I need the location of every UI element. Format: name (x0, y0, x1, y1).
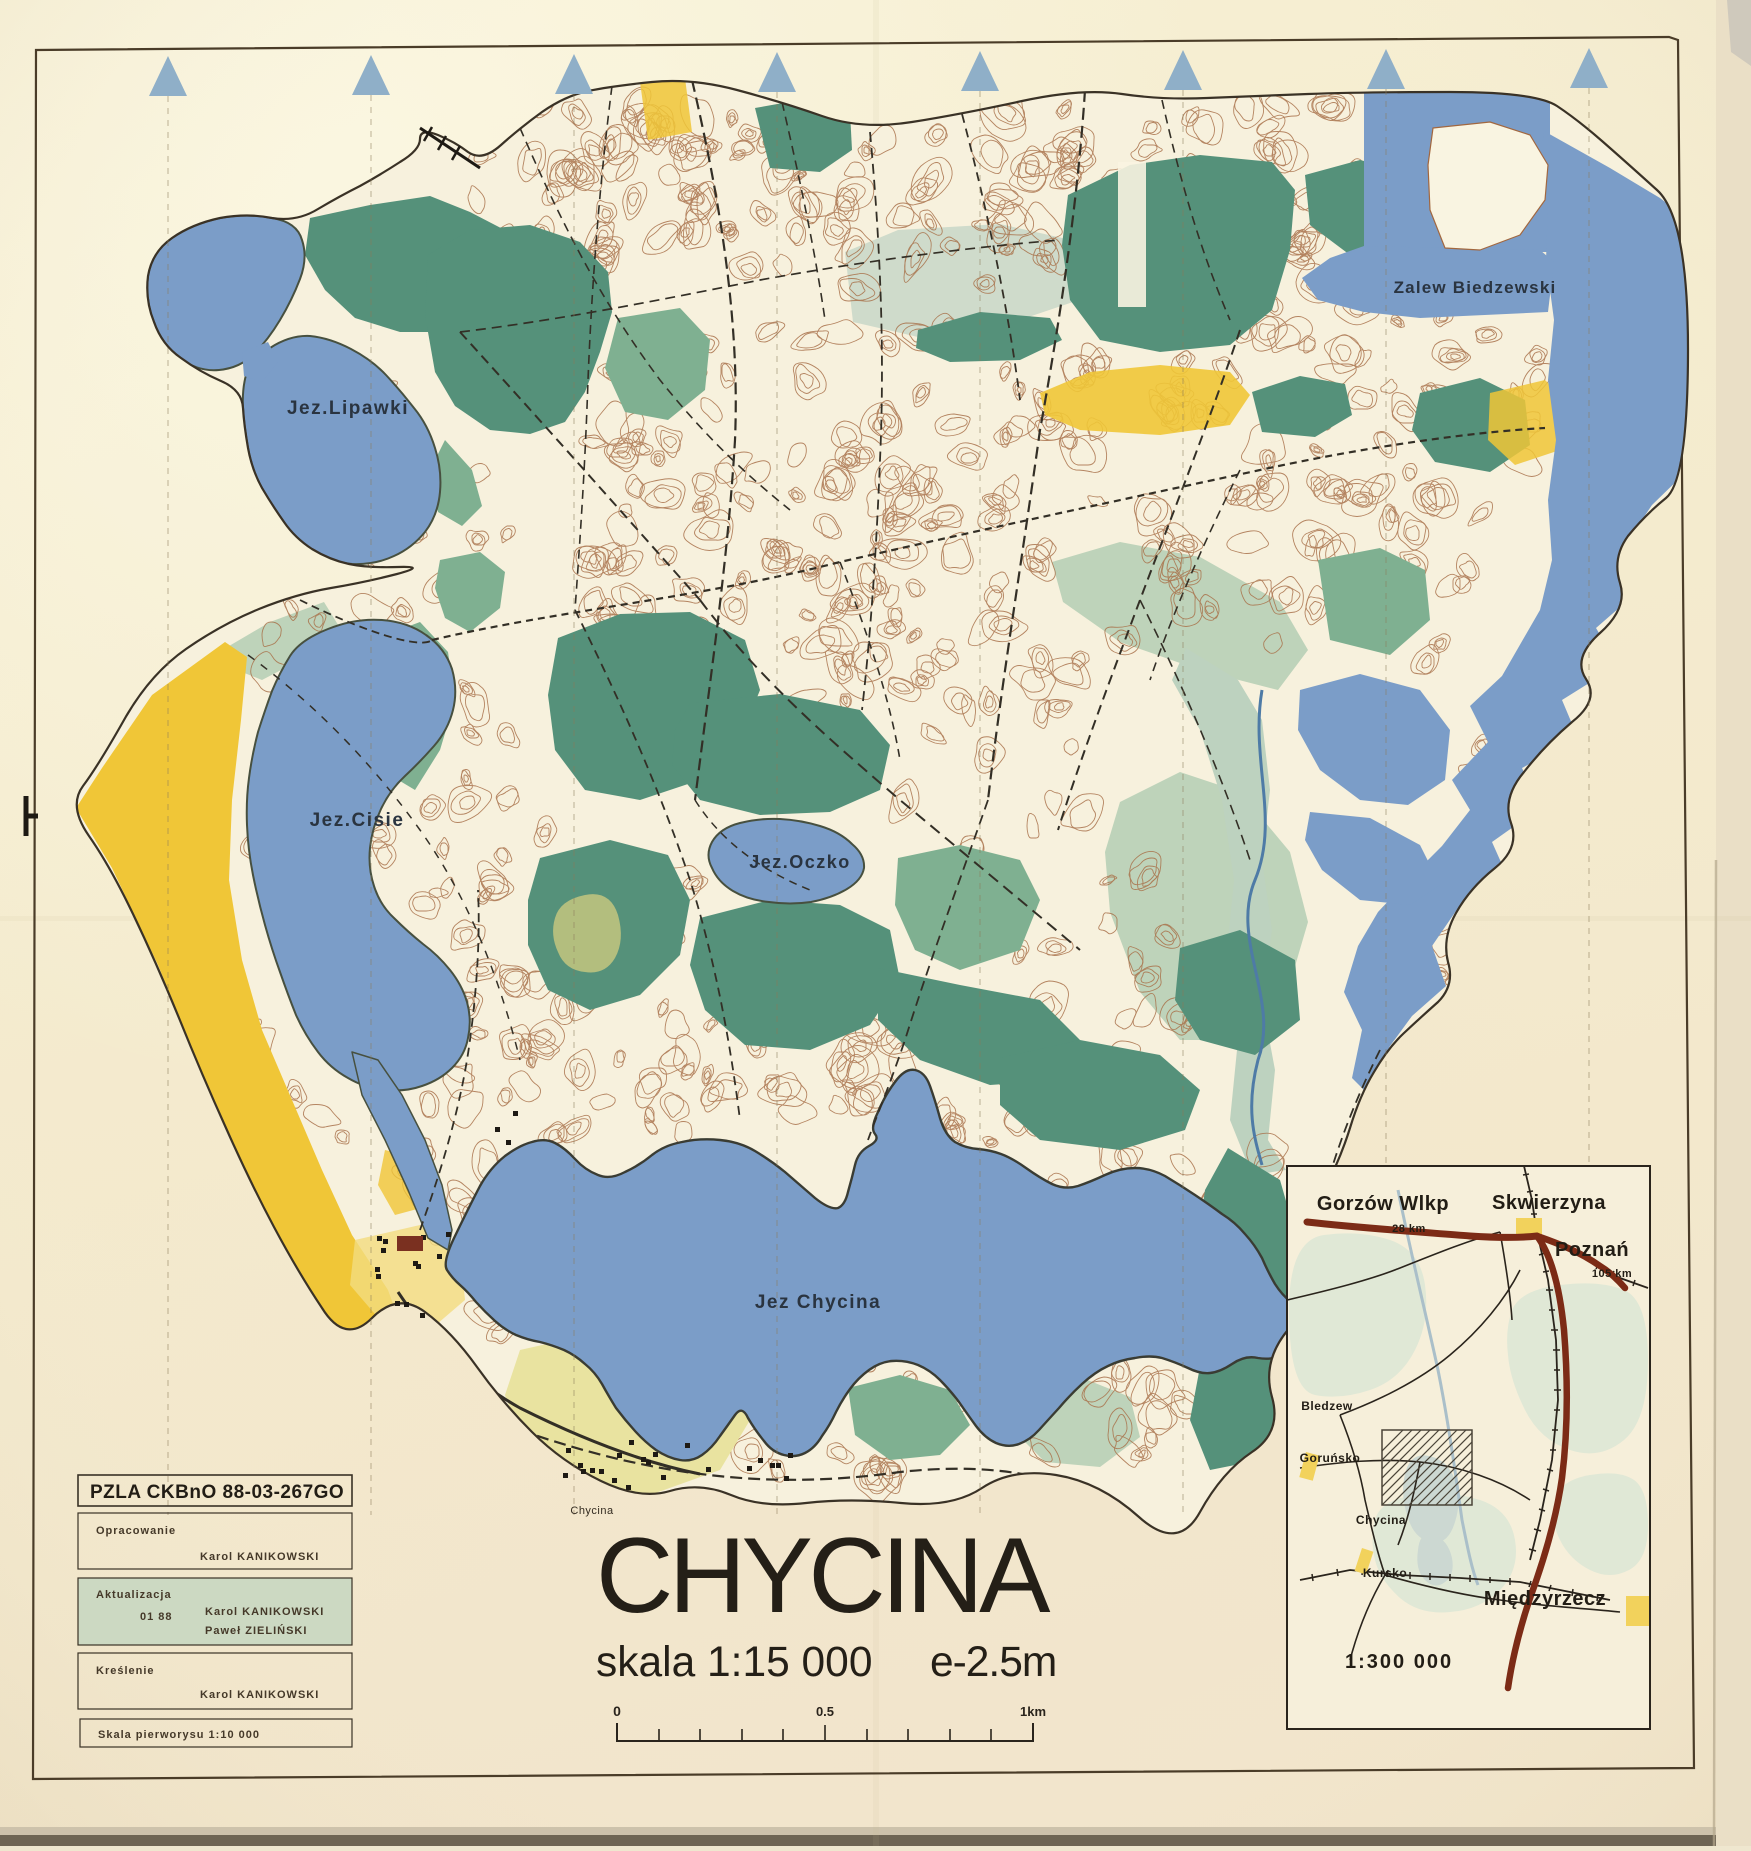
svg-text:Goruńsko: Goruńsko (1300, 1451, 1361, 1465)
svg-text:Paweł ZIELIŃSKI: Paweł ZIELIŃSKI (205, 1624, 307, 1637)
svg-text:Kursko: Kursko (1363, 1566, 1407, 1580)
svg-text:Jez Chycina: Jez Chycina (755, 1292, 881, 1313)
svg-text:PZLA CKBnO 88-03-267GO: PZLA CKBnO 88-03-267GO (90, 1482, 344, 1503)
svg-text:0.5: 0.5 (816, 1704, 834, 1719)
svg-text:Skala pierworysu 1:10 00: Skala pierworysu 1:10 000 (98, 1729, 260, 1741)
svg-text:105 km: 105 km (1592, 1268, 1632, 1280)
svg-text:Kreślenie: Kreślenie (96, 1665, 155, 1677)
svg-text:Bledzew: Bledzew (1301, 1399, 1353, 1413)
svg-text:Karol KANIKOWSKI: Karol KANIKOWSKI (200, 1551, 319, 1563)
svg-text:Jez.Lipawki: Jez.Lipawki (287, 398, 409, 419)
svg-text:Skwierzyna: Skwierzyna (1492, 1192, 1606, 1214)
svg-text:Jez.Cisie: Jez.Cisie (310, 810, 405, 831)
svg-text:Karol KANIKOWSKI: Karol KANIKOWSKI (200, 1689, 319, 1701)
svg-text:01 88: 01 88 (140, 1611, 173, 1623)
svg-text:28 km: 28 km (1392, 1223, 1426, 1235)
svg-text:e-2.5m: e-2.5m (930, 1639, 1056, 1686)
svg-text:Jez.Oczko: Jez.Oczko (749, 852, 851, 872)
svg-text:Zalew Biedzewski: Zalew Biedzewski (1394, 278, 1557, 297)
svg-text:1km: 1km (1020, 1704, 1046, 1719)
svg-text:Gorzów Wlkp: Gorzów Wlkp (1317, 1193, 1449, 1215)
svg-text:0: 0 (613, 1703, 621, 1719)
svg-text:Chycina: Chycina (1356, 1513, 1406, 1527)
svg-text:Poznań: Poznań (1555, 1239, 1629, 1261)
svg-text:Aktualizacja: Aktualizacja (96, 1589, 172, 1601)
svg-text:CHYCINA: CHYCINA (596, 1515, 1051, 1635)
svg-text:1:300 000: 1:300 000 (1345, 1651, 1453, 1673)
svg-text:skala 1:15 000: skala 1:15 000 (596, 1639, 872, 1686)
svg-text:Międzyrzecz: Międzyrzecz (1484, 1588, 1606, 1610)
svg-text:Karol KANIKOWSKI: Karol KANIKOWSKI (205, 1606, 324, 1618)
svg-text:Opracowanie: Opracowanie (96, 1525, 176, 1537)
